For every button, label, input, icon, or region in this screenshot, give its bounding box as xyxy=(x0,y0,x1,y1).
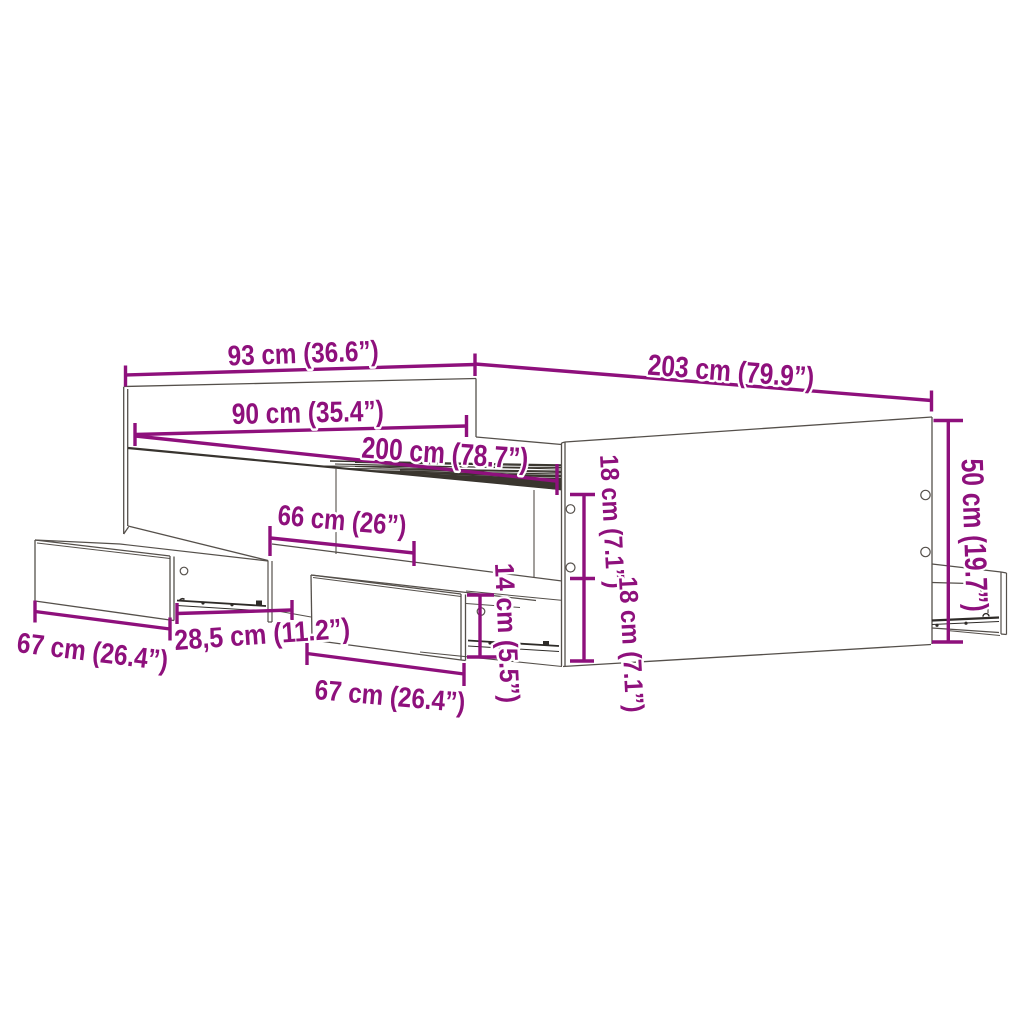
svg-text:14 cm (5.5”): 14 cm (5.5”) xyxy=(489,562,525,703)
svg-text:50 cm (19.7”): 50 cm (19.7”) xyxy=(955,458,995,612)
svg-text:90 cm (35.4”): 90 cm (35.4”) xyxy=(231,395,384,431)
svg-text:93 cm (36.6”): 93 cm (36.6”) xyxy=(227,335,379,372)
